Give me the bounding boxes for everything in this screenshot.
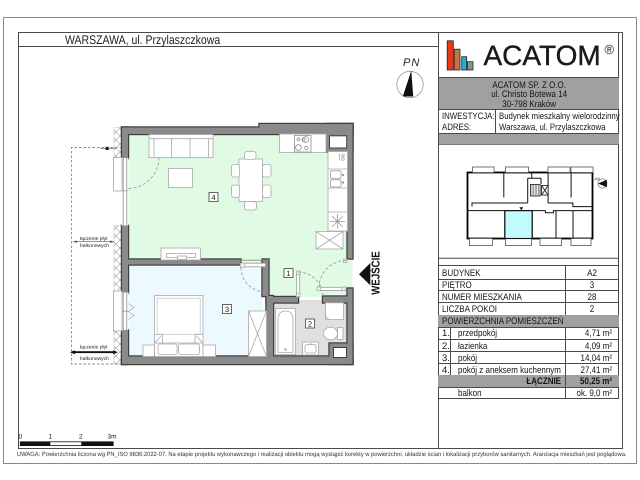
svg-text:balkonowych: balkonowych: [80, 356, 109, 362]
svg-text:3: 3: [225, 305, 229, 314]
svg-text:2: 2: [79, 434, 83, 441]
svg-text:3m: 3m: [108, 434, 117, 441]
svg-text:łączenie płyt: łączenie płyt: [80, 345, 108, 351]
svg-text:4: 4: [211, 193, 215, 202]
svg-text:2: 2: [308, 319, 312, 328]
svg-text:0: 0: [19, 434, 23, 441]
svg-text:łączenie płyt: łączenie płyt: [80, 236, 108, 242]
svg-text:1: 1: [49, 434, 53, 441]
svg-text:1: 1: [286, 269, 290, 278]
svg-text:balkonowych: balkonowych: [80, 243, 109, 249]
svg-text:PN: PN: [595, 177, 601, 182]
